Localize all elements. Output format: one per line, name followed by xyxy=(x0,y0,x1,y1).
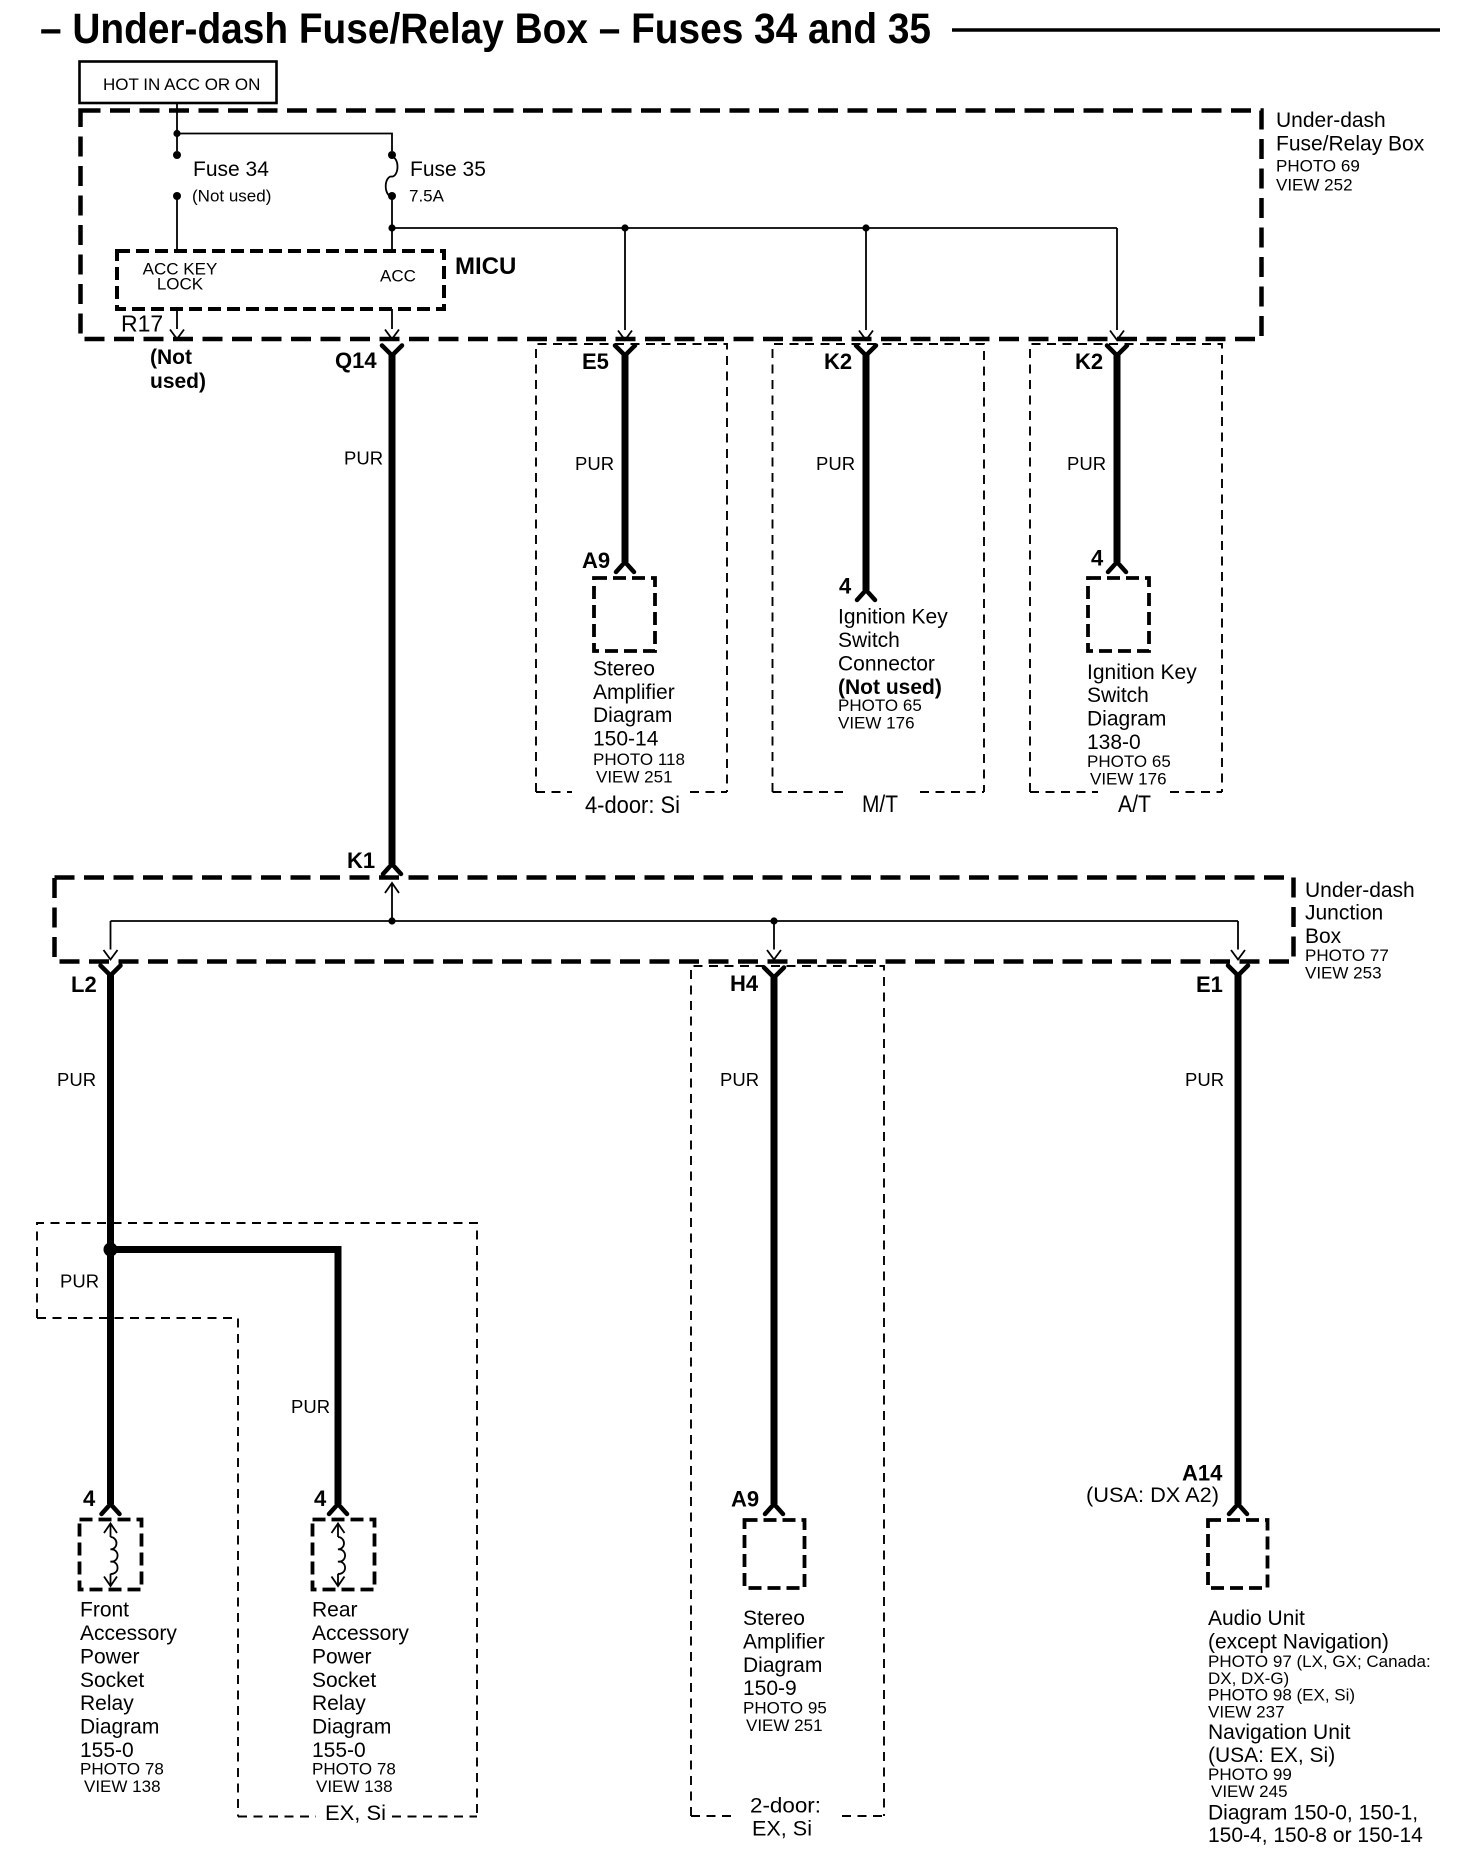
svg-text:K1: K1 xyxy=(347,848,375,873)
svg-text:PHOTO 78: PHOTO 78 xyxy=(312,1760,396,1779)
svg-text:PHOTO 65: PHOTO 65 xyxy=(838,696,922,715)
svg-text:PHOTO 77: PHOTO 77 xyxy=(1305,946,1389,965)
svg-text:Diagram: Diagram xyxy=(743,1654,822,1677)
svg-text:150-9: 150-9 xyxy=(743,1677,797,1700)
svg-text:Fuse/Relay Box: Fuse/Relay Box xyxy=(1276,132,1425,155)
svg-text:PHOTO 69: PHOTO 69 xyxy=(1276,156,1360,175)
svg-text:H4: H4 xyxy=(730,971,759,996)
svg-text:VIEW 138: VIEW 138 xyxy=(316,1777,393,1796)
svg-text:Navigation Unit: Navigation Unit xyxy=(1208,1721,1351,1744)
svg-text:L2: L2 xyxy=(71,972,97,997)
svg-text:LOCK: LOCK xyxy=(157,275,204,294)
svg-text:4: 4 xyxy=(83,1486,96,1511)
svg-text:VIEW 252: VIEW 252 xyxy=(1276,176,1353,195)
svg-text:K2: K2 xyxy=(824,349,852,374)
svg-text:VIEW 138: VIEW 138 xyxy=(84,1777,161,1796)
svg-text:HOT IN ACC OR ON: HOT IN ACC OR ON xyxy=(103,75,260,94)
svg-text:M/T: M/T xyxy=(862,791,898,818)
svg-text:Under-dash: Under-dash xyxy=(1276,109,1386,132)
svg-text:Rear: Rear xyxy=(312,1599,358,1622)
svg-text:A9: A9 xyxy=(731,1487,759,1512)
svg-text:Fuse 35: Fuse 35 xyxy=(410,158,486,181)
svg-text:R17: R17 xyxy=(121,311,163,337)
svg-text:PUR: PUR xyxy=(720,1069,759,1090)
svg-text:VIEW 251: VIEW 251 xyxy=(596,768,673,787)
svg-text:Diagram: Diagram xyxy=(593,704,672,727)
svg-text:PUR: PUR xyxy=(575,453,614,474)
svg-text:Accessory: Accessory xyxy=(312,1622,409,1645)
svg-text:Switch: Switch xyxy=(838,629,900,652)
svg-text:Under-dash: Under-dash xyxy=(1305,879,1415,902)
svg-text:PHOTO 118: PHOTO 118 xyxy=(593,750,685,769)
svg-text:Amplifier: Amplifier xyxy=(743,1630,825,1653)
svg-text:Ignition Key: Ignition Key xyxy=(838,606,948,629)
svg-text:PUR: PUR xyxy=(1067,453,1106,474)
svg-text:Junction: Junction xyxy=(1305,902,1383,925)
svg-text:Diagram 150-0, 150-1,: Diagram 150-0, 150-1, xyxy=(1208,1801,1418,1824)
svg-text:EX, Si: EX, Si xyxy=(752,1817,812,1841)
svg-text:(Not: (Not xyxy=(150,346,192,369)
svg-text:E5: E5 xyxy=(582,349,609,374)
svg-text:PUR: PUR xyxy=(816,453,855,474)
svg-text:Connector: Connector xyxy=(838,652,935,675)
svg-text:Socket: Socket xyxy=(312,1669,376,1692)
svg-text:PUR: PUR xyxy=(291,1396,330,1417)
svg-text:K2: K2 xyxy=(1075,349,1103,374)
svg-text:Relay: Relay xyxy=(312,1692,366,1715)
svg-text:4: 4 xyxy=(314,1486,327,1511)
svg-text:4: 4 xyxy=(839,574,852,599)
svg-text:VIEW 251: VIEW 251 xyxy=(746,1716,823,1735)
svg-text:ACC: ACC xyxy=(380,267,416,286)
svg-text:Diagram: Diagram xyxy=(80,1716,159,1739)
svg-text:150-14: 150-14 xyxy=(593,728,659,751)
svg-text:Relay: Relay xyxy=(80,1692,134,1715)
svg-text:Diagram: Diagram xyxy=(312,1716,391,1739)
svg-text:PUR: PUR xyxy=(57,1069,96,1090)
svg-text:Stereo: Stereo xyxy=(743,1607,805,1630)
svg-text:PUR: PUR xyxy=(60,1271,99,1292)
svg-text:A14: A14 xyxy=(1182,1461,1223,1486)
svg-text:PHOTO 65: PHOTO 65 xyxy=(1087,752,1171,771)
svg-text:Ignition Key: Ignition Key xyxy=(1087,661,1197,684)
svg-text:Power: Power xyxy=(312,1645,372,1668)
svg-text:Accessory: Accessory xyxy=(80,1622,177,1645)
svg-text:4-door: Si: 4-door: Si xyxy=(585,792,680,819)
svg-text:Audio Unit: Audio Unit xyxy=(1208,1607,1305,1630)
svg-text:PHOTO 95: PHOTO 95 xyxy=(743,1699,827,1718)
svg-text:Amplifier: Amplifier xyxy=(593,681,675,704)
svg-text:7.5A: 7.5A xyxy=(409,187,445,206)
svg-text:Stereo: Stereo xyxy=(593,657,655,680)
svg-text:VIEW 245: VIEW 245 xyxy=(1211,1782,1288,1801)
svg-text:– Under-dash Fuse/Relay Box –: – Under-dash Fuse/Relay Box – Fuses 34 a… xyxy=(40,5,931,53)
svg-text:Fuse 34: Fuse 34 xyxy=(193,158,269,181)
svg-text:138-0: 138-0 xyxy=(1087,731,1141,754)
svg-text:VIEW 176: VIEW 176 xyxy=(838,714,915,733)
svg-text:Diagram: Diagram xyxy=(1087,708,1166,731)
svg-text:(USA: EX, Si): (USA: EX, Si) xyxy=(1208,1744,1335,1767)
svg-text:(except Navigation): (except Navigation) xyxy=(1208,1631,1389,1654)
svg-text:E1: E1 xyxy=(1196,972,1223,997)
svg-text:used): used) xyxy=(150,370,206,393)
svg-text:Box: Box xyxy=(1305,925,1342,948)
svg-text:VIEW 176: VIEW 176 xyxy=(1090,769,1167,788)
svg-text:2-door:: 2-door: xyxy=(750,1794,821,1818)
svg-text:Socket: Socket xyxy=(80,1669,144,1692)
svg-text:VIEW 253: VIEW 253 xyxy=(1305,964,1382,983)
svg-text:MICU: MICU xyxy=(455,253,516,280)
svg-text:PUR: PUR xyxy=(1185,1069,1224,1090)
svg-text:Front: Front xyxy=(80,1599,129,1622)
svg-text:(Not used): (Not used) xyxy=(192,187,271,206)
svg-text:150-4, 150-8 or 150-14: 150-4, 150-8 or 150-14 xyxy=(1208,1824,1423,1847)
svg-text:4: 4 xyxy=(1091,546,1104,571)
svg-text:Q14: Q14 xyxy=(335,348,377,373)
svg-text:A9: A9 xyxy=(582,548,610,573)
svg-text:A/T: A/T xyxy=(1118,791,1151,818)
svg-text:PHOTO 78: PHOTO 78 xyxy=(80,1760,164,1779)
svg-text:(USA: DX A2): (USA: DX A2) xyxy=(1086,1484,1219,1507)
svg-text:PUR: PUR xyxy=(344,448,383,469)
svg-text:Switch: Switch xyxy=(1087,684,1149,707)
svg-text:VIEW 237: VIEW 237 xyxy=(1208,1703,1285,1722)
svg-text:EX, Si: EX, Si xyxy=(325,1801,386,1825)
svg-text:Power: Power xyxy=(80,1645,140,1668)
